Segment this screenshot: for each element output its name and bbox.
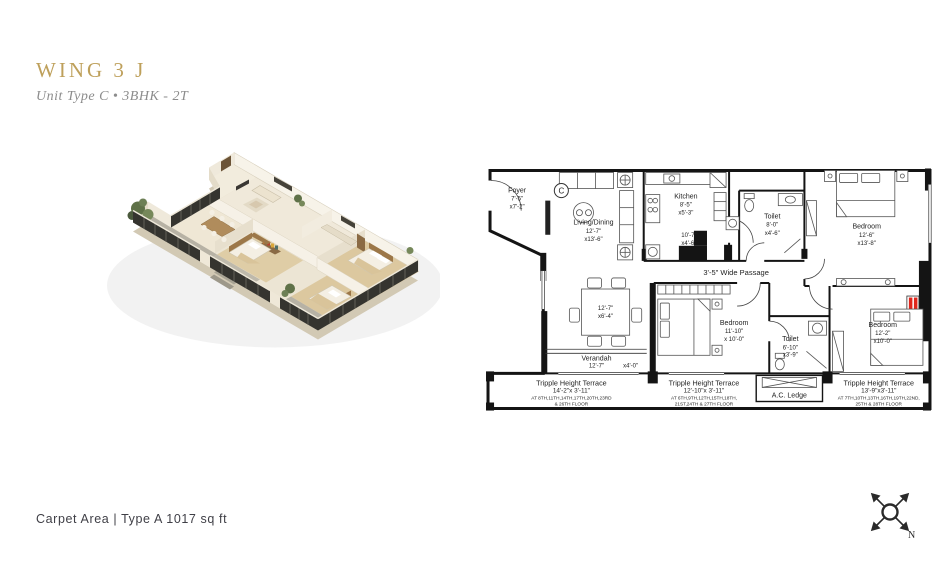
north-label: N (908, 530, 915, 541)
room-label-verandah: Verandah (581, 355, 611, 362)
svg-text:6'-10": 6'-10" (783, 345, 798, 351)
terrace-2-label: Tripple Height Terrace (669, 378, 740, 387)
svg-text:8'-5": 8'-5" (680, 203, 692, 209)
svg-text:x3'-9": x3'-9" (783, 352, 798, 358)
svg-text:AT 8TH,11TH,14TH,17TH,20TH,23R: AT 8TH,11TH,14TH,17TH,20TH,23RD (531, 395, 612, 401)
svg-text:x4'-6": x4'-6" (765, 231, 780, 237)
compass: N (864, 486, 922, 544)
unit-floor-plan: C Foyer 7'-5" x7'-2" Living/Dining 12'-7… (483, 160, 935, 414)
room-label-bedroom-top: Bedroom (852, 224, 881, 231)
header: WING 3 J Unit Type C • 3BHK - 2T (36, 58, 188, 105)
svg-text:25TH & 28TH FLOOR: 25TH & 28TH FLOOR (856, 402, 903, 408)
room-label-toilet-top: Toilet (764, 214, 780, 221)
ac-ledge-label: A.C. Ledge (772, 392, 807, 399)
room-label-bedroom-middle: Bedroom (720, 320, 749, 327)
svg-text:x5'-3": x5'-3" (678, 211, 693, 217)
svg-text:AT 7TH,10TH,13TH,16TH,19TH,22N: AT 7TH,10TH,13TH,16TH,19TH,22ND, (838, 395, 920, 401)
svg-text:21ST,24TH & 27TH FLOOR: 21ST,24TH & 27TH FLOOR (675, 402, 734, 408)
svg-text:x7'-2": x7'-2" (510, 205, 525, 211)
svg-text:13'-9"x3'-11": 13'-9"x3'-11" (861, 387, 896, 394)
room-label-bedroom-right: Bedroom (869, 322, 898, 329)
floor-plan-drawing: C Foyer 7'-5" x7'-2" Living/Dining 12'-7… (483, 160, 935, 414)
page-subtitle: Unit Type C • 3BHK - 2T (36, 89, 188, 105)
unit-3d-render-illustration (40, 128, 440, 423)
svg-text:x13'-6": x13'-6" (584, 237, 602, 243)
svg-text:12'-7": 12'-7" (589, 363, 604, 369)
svg-text:x4'-6": x4'-6" (681, 241, 696, 247)
room-label-kitchen: Kitchen (674, 194, 697, 201)
svg-text:8'-0": 8'-0" (766, 223, 778, 229)
compass-icon: N (864, 486, 922, 544)
grid-marker-label: C (558, 187, 564, 196)
passage-label: 3'-5" Wide Passage (703, 268, 769, 277)
svg-text:12'-2": 12'-2" (875, 331, 890, 337)
terrace-3-label: Tripple Height Terrace (843, 378, 914, 387)
room-label-utility: 10'-7" (681, 233, 696, 239)
svg-text:x13'-8": x13'-8" (858, 241, 876, 247)
svg-text:x 10'-0": x 10'-0" (724, 337, 744, 343)
svg-text:7'-5": 7'-5" (511, 197, 523, 203)
svg-text:14'-2"x 3'-11": 14'-2"x 3'-11" (553, 387, 590, 394)
svg-text:x6'-4": x6'-4" (598, 314, 613, 320)
svg-text:x4'-0": x4'-0" (623, 363, 638, 369)
unit-3d-render (40, 128, 440, 423)
page-title: WING 3 J (36, 58, 188, 83)
room-label-toilet-bottom: Toilet (782, 336, 798, 343)
room-label-living: Living/Dining (573, 220, 613, 227)
svg-text:12'-6": 12'-6" (859, 233, 874, 239)
svg-text:AT 6TH,9TH,12TH,15TH,18TH,: AT 6TH,9TH,12TH,15TH,18TH, (671, 395, 737, 401)
room-label-foyer: Foyer (508, 188, 527, 195)
svg-text:x10'-0": x10'-0" (874, 339, 892, 345)
dining-nook-label: 12'-7" (598, 306, 613, 312)
svg-text:12'-10"x 3'-11": 12'-10"x 3'-11" (684, 387, 725, 394)
svg-text:11'-10": 11'-10" (725, 329, 743, 335)
brochure-page: WING 3 J Unit Type C • 3BHK - 2T (0, 0, 945, 577)
carpet-area-label: Carpet Area | Type A 1017 sq ft (36, 512, 227, 526)
terrace-1-label: Tripple Height Terrace (536, 378, 607, 387)
svg-text:& 26TH FLOOR: & 26TH FLOOR (555, 402, 589, 408)
svg-text:12'-7": 12'-7" (586, 229, 601, 235)
